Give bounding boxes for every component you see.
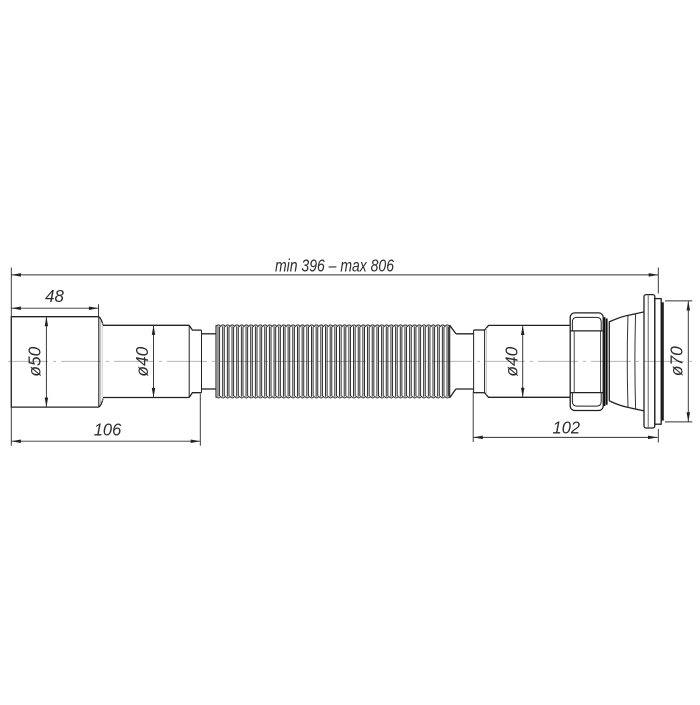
svg-text:ø40: ø40 [502, 346, 522, 376]
svg-text:106: 106 [94, 419, 122, 439]
svg-text:min 396 – max 806: min 396 – max 806 [275, 255, 394, 275]
svg-text:102: 102 [553, 417, 581, 437]
svg-text:ø50: ø50 [25, 346, 45, 376]
svg-text:ø70: ø70 [666, 346, 686, 376]
svg-text:48: 48 [45, 286, 64, 306]
svg-text:ø40: ø40 [132, 346, 152, 376]
